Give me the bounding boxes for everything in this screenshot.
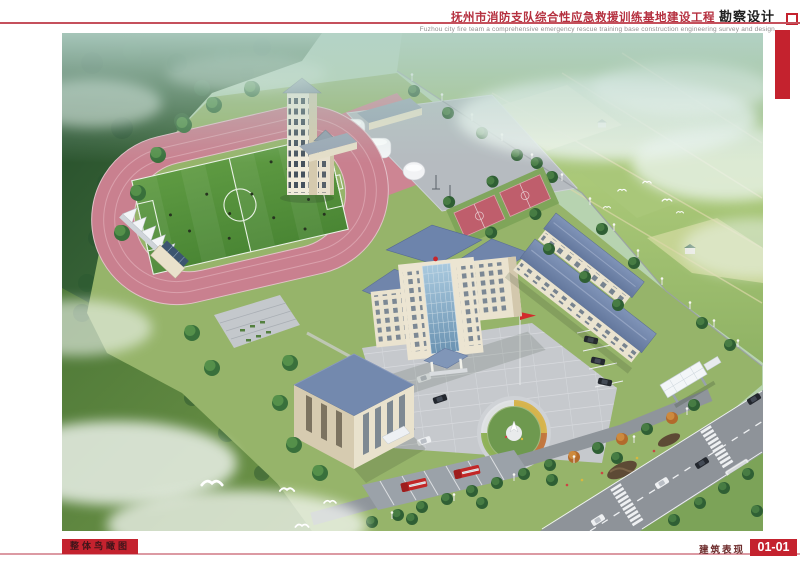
sheet-title-badge: 整体鸟瞰图 <box>62 539 138 554</box>
header-rule <box>0 22 800 24</box>
aerial-rendering <box>62 33 763 531</box>
red-accent-bar <box>775 30 790 99</box>
sheet-number-badge: 01-01 <box>750 539 797 556</box>
haze-overlay <box>62 33 763 163</box>
category-label: 建筑表现 <box>699 542 745 556</box>
project-subtitle-en: Fuzhou city fire team a comprehensive em… <box>420 26 775 33</box>
presentation-sheet: 抚州市消防支队综合性应急救援训练基地建设工程勘察设计 Fuzhou city f… <box>0 0 800 566</box>
